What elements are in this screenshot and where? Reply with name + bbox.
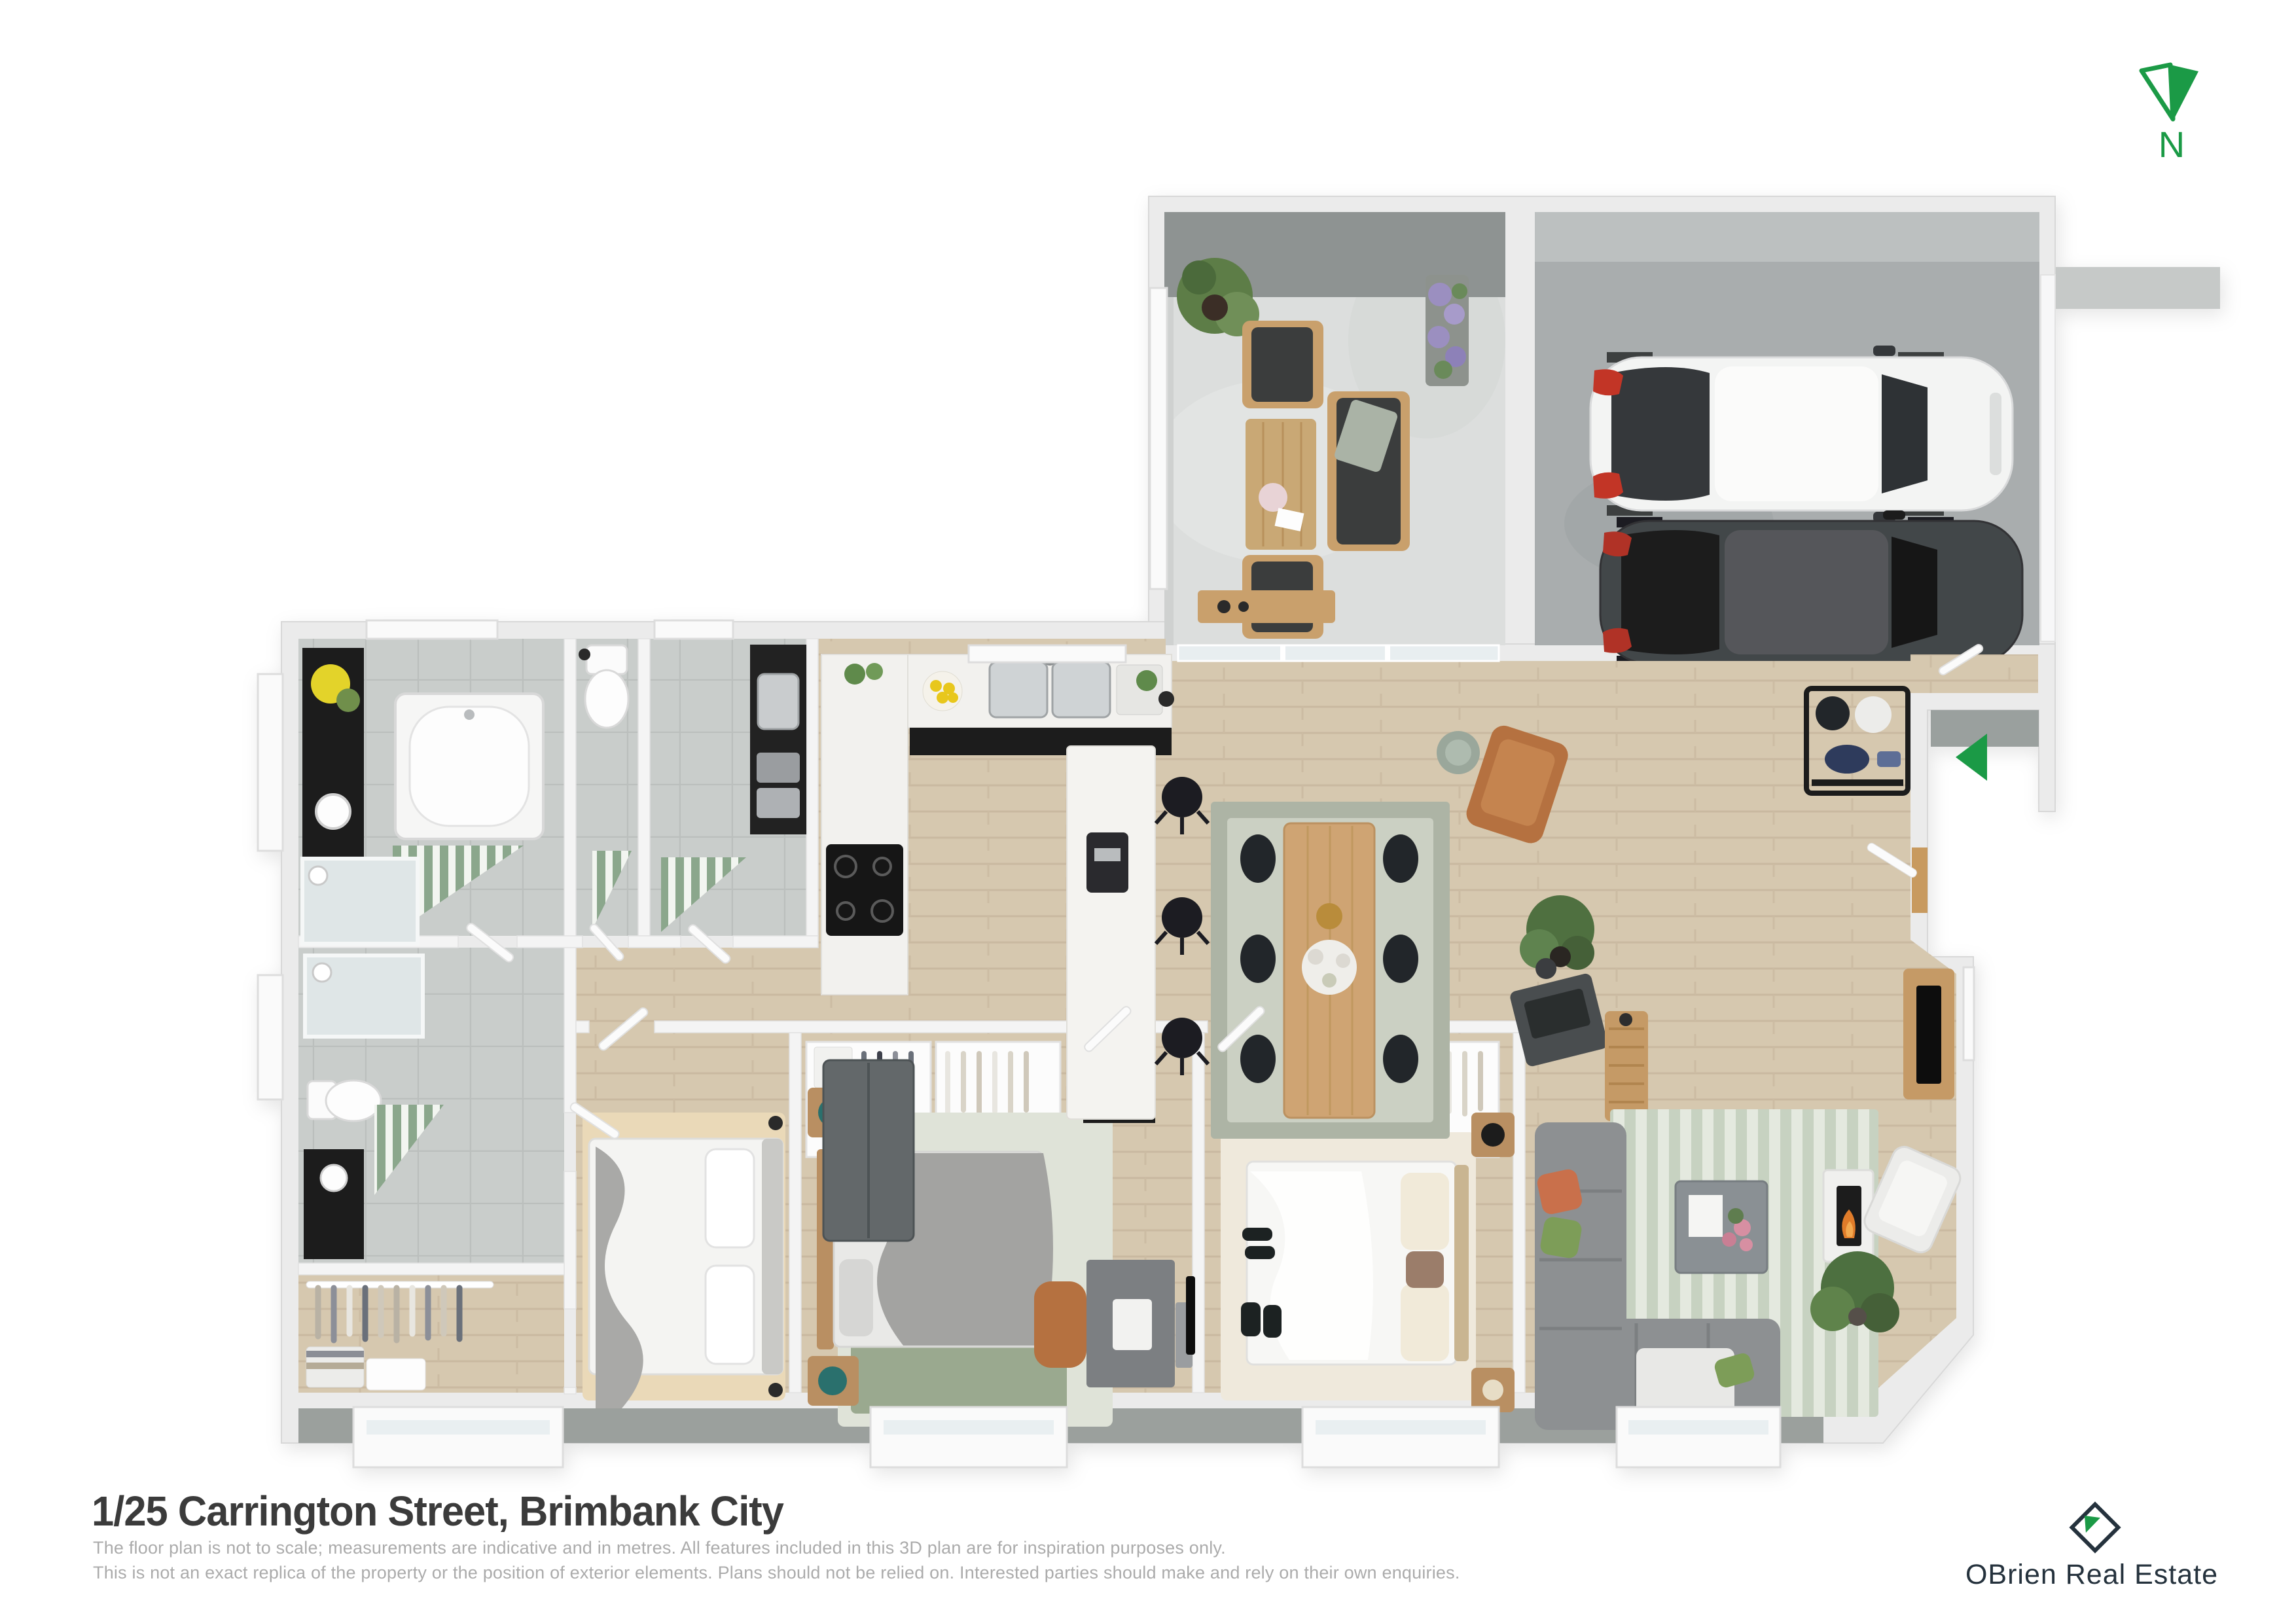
brand-name: OBrien Real Estate <box>1949 1559 2234 1591</box>
driveway <box>2055 267 2220 309</box>
coffee-machine <box>1086 832 1128 893</box>
garage-door <box>2041 275 2055 641</box>
fridge <box>823 1060 914 1241</box>
car-white <box>1590 346 2013 522</box>
logo-diamond-outline <box>2069 1501 2121 1553</box>
robe-drawers <box>367 1359 425 1390</box>
house-render <box>258 196 2220 1467</box>
bathtub <box>395 694 543 839</box>
brand-logo: OBrien Real Estate <box>1949 1500 2234 1591</box>
television <box>1916 986 1941 1084</box>
island-bench <box>1067 746 1155 1123</box>
north-label: N <box>2159 124 2185 165</box>
front-door <box>1912 847 1928 913</box>
floor-plan-3d-render: N <box>0 0 2296 1623</box>
page-title: 1/25 Carrington Street, Brimbank City <box>92 1487 783 1535</box>
ensuite-shower <box>305 955 423 1037</box>
patio-armchair-1 <box>1242 321 1323 408</box>
cooktop <box>826 844 903 936</box>
cushion-green <box>1539 1215 1583 1259</box>
north-arrow-fill <box>2170 65 2198 120</box>
record-player <box>1481 1123 1505 1147</box>
ensuite-toilet <box>308 1080 381 1121</box>
cushion-orange <box>1535 1168 1584 1216</box>
patio <box>1152 212 1505 645</box>
north-arrow-icon <box>2142 65 2173 119</box>
disclaimer-line-1: The floor plan is not to scale; measurem… <box>93 1538 1226 1558</box>
wall-tv-bedroom2 <box>1186 1276 1195 1355</box>
diamond-flag-icon <box>2068 1500 2116 1548</box>
patio-sliding-door <box>1178 645 1499 661</box>
floor-plan-page: N 1/25 Carrington Street, Brimbank City … <box>0 0 2296 1623</box>
dining-area <box>1211 802 1450 1139</box>
backpack <box>1816 696 1850 730</box>
garage <box>1535 212 2055 673</box>
dining-table <box>1284 823 1374 1118</box>
patio-coffee-table <box>1246 419 1316 550</box>
master-bed <box>589 1139 783 1408</box>
desk-chair <box>1034 1281 1086 1368</box>
slat-bench <box>1605 1011 1648 1121</box>
patio-planter-box <box>1426 275 1469 386</box>
shower <box>302 859 418 944</box>
master-bedroom <box>583 1113 785 1408</box>
disclaimer-line-2: This is not an exact replica of the prop… <box>93 1563 1460 1583</box>
magazine <box>1689 1195 1723 1237</box>
kitchen-bench-left <box>821 654 908 995</box>
car-dark <box>1600 510 2022 673</box>
north-indicator: N <box>2142 65 2198 165</box>
coffee-table <box>1676 1181 1767 1273</box>
patio-sofa <box>1327 391 1410 551</box>
duffel-bag <box>1825 745 1869 774</box>
tv-unit <box>1903 969 1954 1099</box>
